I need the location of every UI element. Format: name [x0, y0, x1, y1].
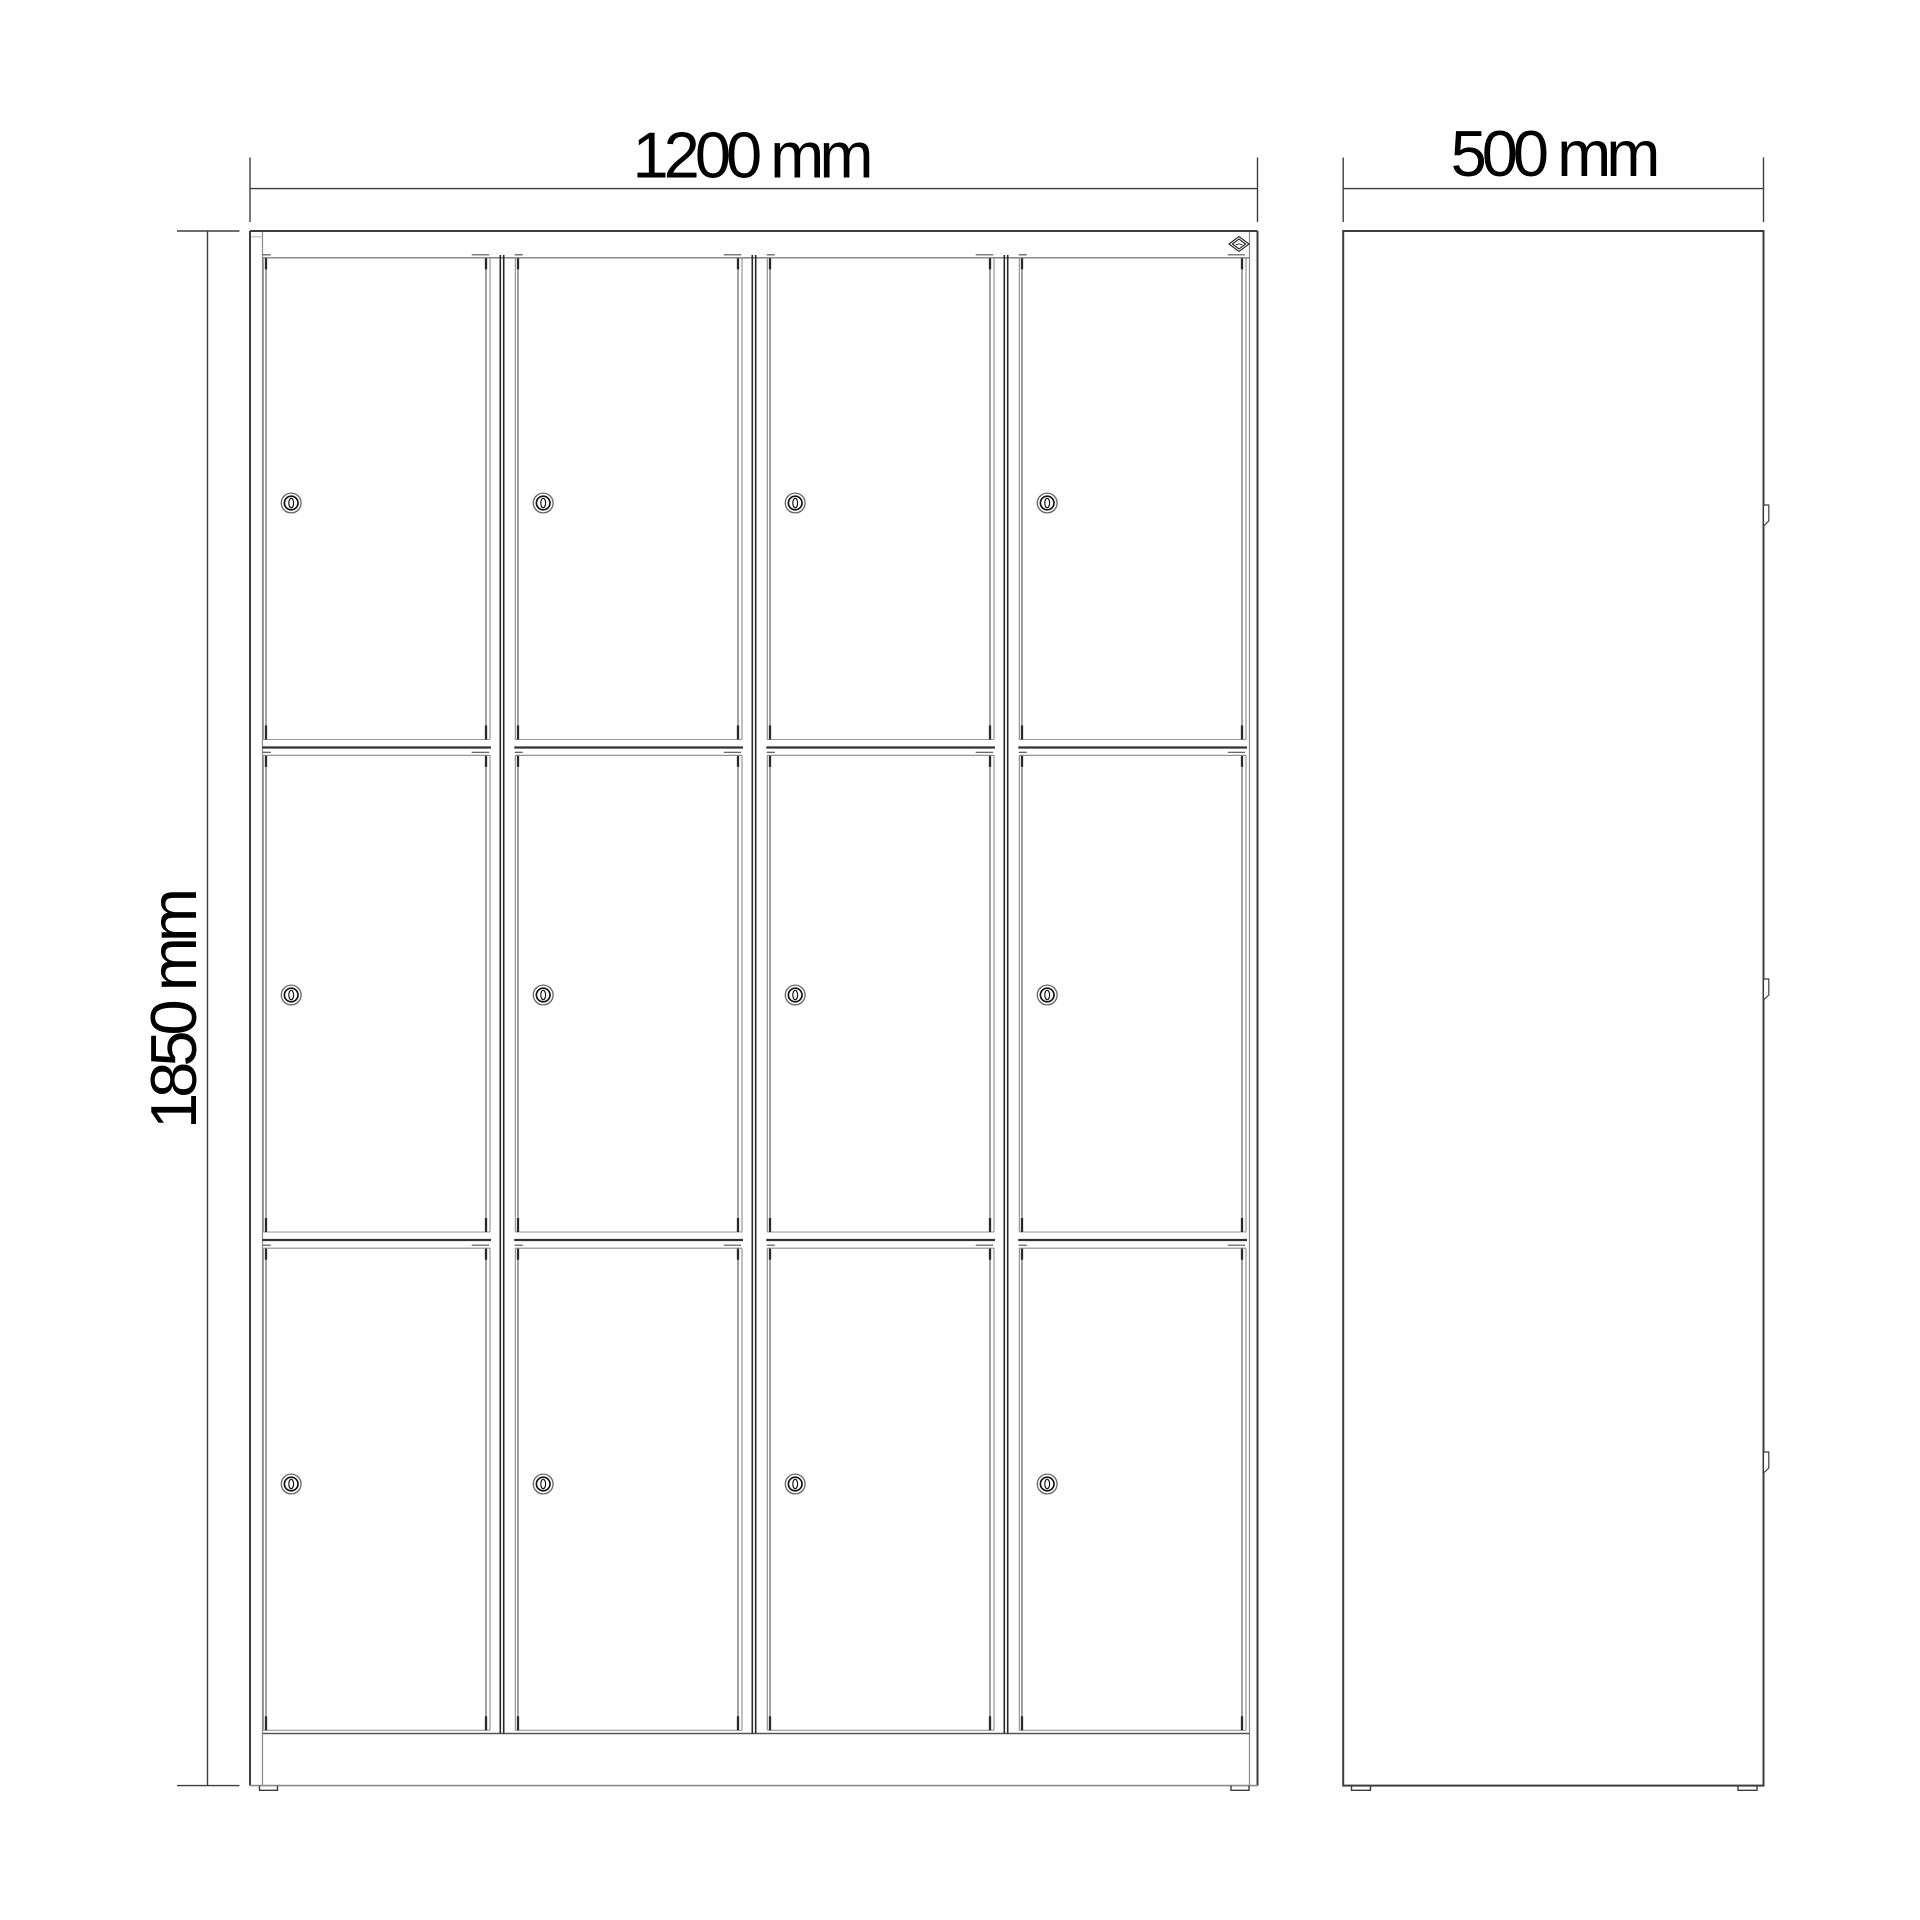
svg-text:1200 mm: 1200 mm	[633, 119, 870, 192]
svg-text:500 mm: 500 mm	[1451, 117, 1657, 190]
svg-text:1850 mm: 1850 mm	[137, 892, 210, 1129]
